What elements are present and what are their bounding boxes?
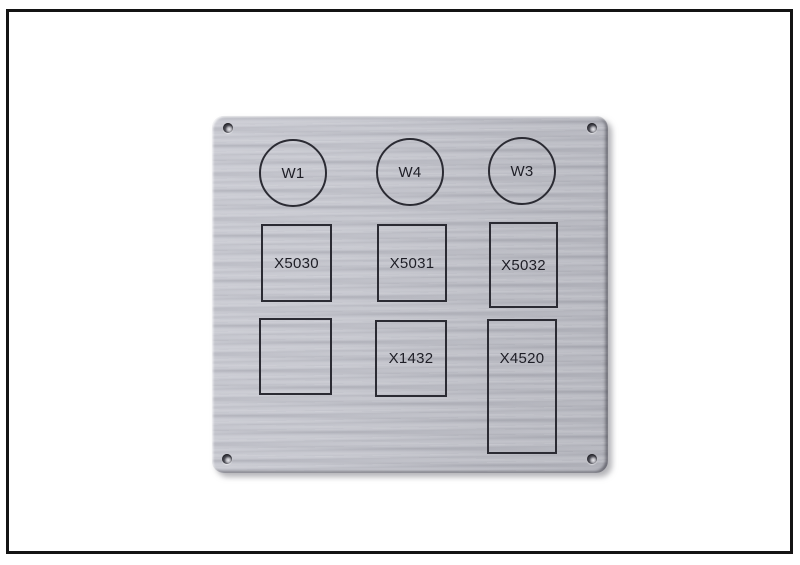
box-cutout-empty <box>259 318 332 395</box>
circle-label-w3: W3 <box>510 163 533 180</box>
picture-frame-border: W1 W4 W3 X5030 X5031 X5032 X1432 <box>6 9 793 554</box>
screw-hole-bottom-left <box>222 454 232 464</box>
screw-hole-bottom-right <box>587 454 597 464</box>
circle-cutout-w4: W4 <box>376 138 444 206</box>
box-label-x5031: X5031 <box>390 255 435 272</box>
box-cutout-x5031: X5031 <box>377 224 447 302</box>
box-cutout-x4520: X4520 <box>487 319 557 454</box>
box-label-x4520: X4520 <box>500 350 545 367</box>
circle-label-w4: W4 <box>398 164 421 181</box>
screw-hole-top-right <box>587 123 597 133</box>
brushed-metal-panel: W1 W4 W3 X5030 X5031 X5032 X1432 <box>212 116 608 473</box>
box-label-x1432: X1432 <box>389 350 434 367</box>
photo-stage: W1 W4 W3 X5030 X5031 X5032 X1432 <box>0 0 800 565</box>
circle-cutout-w1: W1 <box>259 139 327 207</box>
box-label-x5030: X5030 <box>274 255 319 272</box>
box-cutout-x1432: X1432 <box>375 320 447 397</box>
box-cutout-x5032: X5032 <box>489 222 558 308</box>
circle-cutout-w3: W3 <box>488 137 556 205</box>
box-cutout-x5030: X5030 <box>261 224 332 302</box>
screw-hole-top-left <box>223 123 233 133</box>
circle-label-w1: W1 <box>281 165 304 182</box>
box-label-x5032: X5032 <box>501 257 546 274</box>
